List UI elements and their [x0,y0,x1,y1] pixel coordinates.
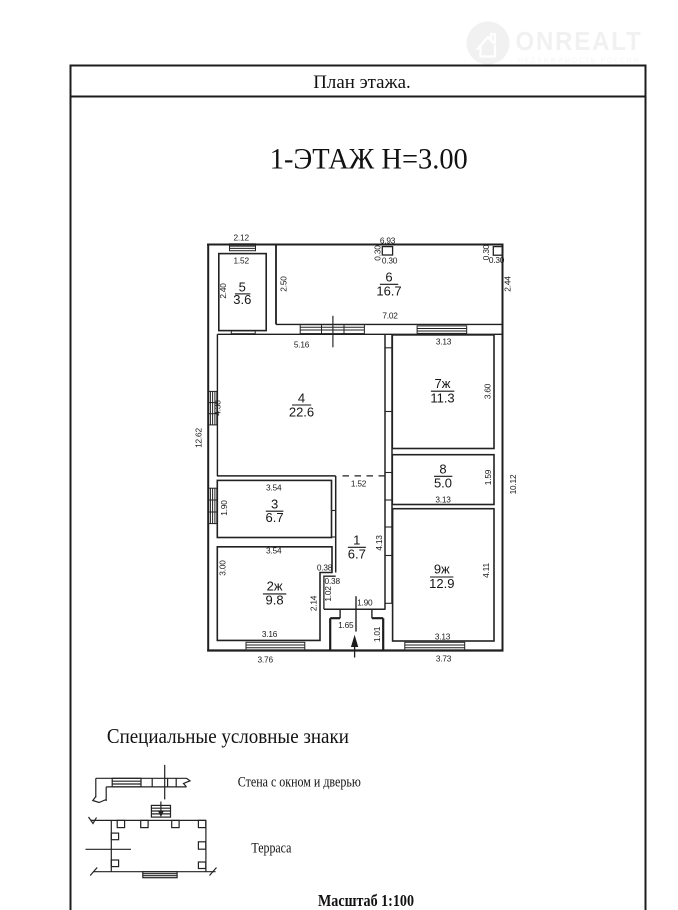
svg-text:3.13: 3.13 [435,495,451,505]
svg-text:Стена с окном и дверью: Стена с окном и дверью [238,775,361,791]
svg-text:1.52: 1.52 [234,255,250,265]
svg-text:1.65: 1.65 [338,620,354,630]
svg-text:12.9: 12.9 [429,576,454,591]
svg-text:3.00: 3.00 [217,560,227,576]
svg-text:2.12: 2.12 [234,233,250,243]
svg-text:3.73: 3.73 [436,653,452,663]
svg-text:3.54: 3.54 [266,546,282,556]
svg-text:1.90: 1.90 [357,598,373,608]
svg-text:ONREALT: ONREALT [516,28,643,56]
svg-text:1.01: 1.01 [372,626,382,642]
svg-text:4.11: 4.11 [481,563,491,578]
svg-text:1.02: 1.02 [323,586,333,602]
svg-text:5.0: 5.0 [434,475,452,490]
svg-text:10.12: 10.12 [508,474,518,494]
svg-text:2.14: 2.14 [308,595,318,611]
svg-text:3.13: 3.13 [435,632,451,642]
svg-text:5.16: 5.16 [294,340,310,350]
svg-text:0.38: 0.38 [325,576,341,586]
svg-text:3.54: 3.54 [266,483,282,493]
svg-text:8: 8 [439,461,446,476]
svg-text:2.44: 2.44 [502,276,512,292]
svg-text:7.02: 7.02 [382,310,398,320]
svg-text:Терраса: Терраса [251,841,291,857]
svg-text:3.76: 3.76 [258,655,274,665]
svg-text:1.52: 1.52 [351,479,367,489]
svg-text:2ж: 2ж [267,578,283,593]
svg-text:1.59: 1.59 [483,469,493,485]
svg-text:0.38: 0.38 [317,562,333,572]
svg-text:0.30: 0.30 [489,255,505,265]
svg-text:1.90: 1.90 [219,500,229,516]
svg-text:3.13: 3.13 [436,337,452,347]
svg-text:4: 4 [298,390,305,405]
svg-text:7ж: 7ж [435,376,451,391]
svg-text:9ж: 9ж [434,562,450,577]
svg-text:4.13: 4.13 [374,535,384,551]
svg-text:11.3: 11.3 [430,390,454,405]
svg-text:12.62: 12.62 [193,428,203,448]
svg-text:2.50: 2.50 [278,276,288,292]
svg-text:6.7: 6.7 [348,546,366,561]
svg-text:Масштаб 1:100: Масштаб 1:100 [318,891,414,910]
svg-text:6.93: 6.93 [380,236,396,246]
svg-text:22.6: 22.6 [289,404,314,419]
svg-text:3.16: 3.16 [262,629,278,639]
svg-text:9.8: 9.8 [266,593,284,608]
svg-text:0.30: 0.30 [382,255,398,265]
svg-text:16.7: 16.7 [376,283,401,298]
svg-text:6: 6 [385,270,392,285]
svg-text:План этажа.: План этажа. [313,73,411,93]
svg-text:6.7: 6.7 [266,510,284,525]
svg-text:3.60: 3.60 [482,383,492,399]
svg-text:1: 1 [353,532,360,547]
svg-text:4.38: 4.38 [212,400,222,416]
svg-text:Специальные условные знаки: Специальные условные знаки [107,724,349,748]
svg-text:2.40: 2.40 [218,283,228,299]
svg-text:1-ЭТАЖ Н=3.00: 1-ЭТАЖ Н=3.00 [270,143,468,176]
svg-text:НЕДВИЖИМОСТЬ РОССИИ: НЕДВИЖИМОСТЬ РОССИИ [518,56,640,65]
